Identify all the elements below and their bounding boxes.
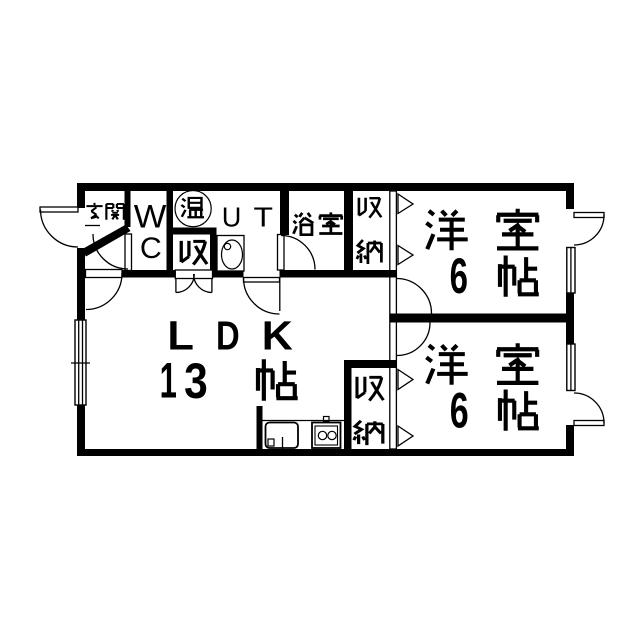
svg-text:D: D bbox=[216, 312, 240, 358]
svg-text:3: 3 bbox=[184, 353, 208, 409]
svg-text:6: 6 bbox=[450, 383, 469, 439]
svg-text:U: U bbox=[222, 201, 242, 232]
svg-text:T: T bbox=[254, 202, 274, 233]
svg-text:W: W bbox=[134, 199, 167, 235]
svg-text:K: K bbox=[262, 312, 293, 358]
svg-text:1: 1 bbox=[160, 352, 177, 408]
svg-text:C: C bbox=[140, 233, 162, 266]
svg-text:6: 6 bbox=[450, 248, 468, 303]
